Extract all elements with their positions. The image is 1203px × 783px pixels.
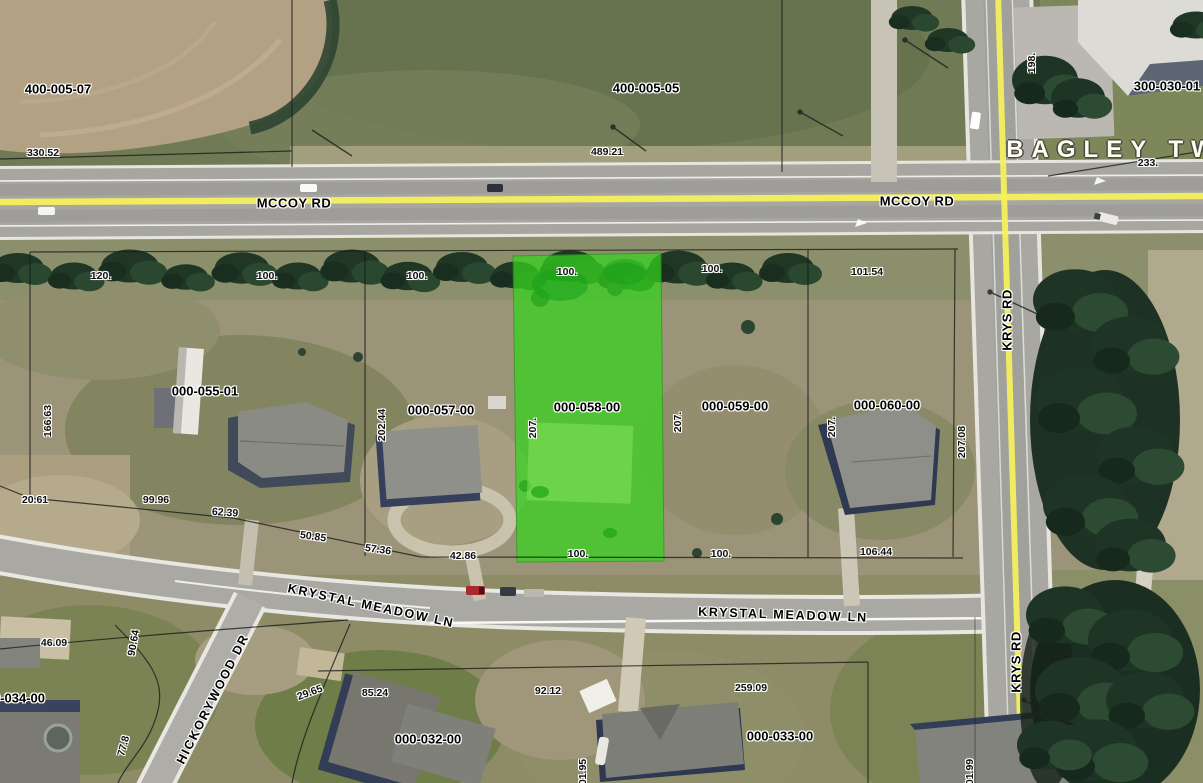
aerial-basemap [0,0,1203,783]
forest-southeast [1017,580,1200,783]
highlighted-parcel[interactable] [513,253,664,562]
map-viewport[interactable]: 400-005-07400-005-05300-030-01000-055-01… [0,0,1203,783]
trampoline [45,725,71,751]
